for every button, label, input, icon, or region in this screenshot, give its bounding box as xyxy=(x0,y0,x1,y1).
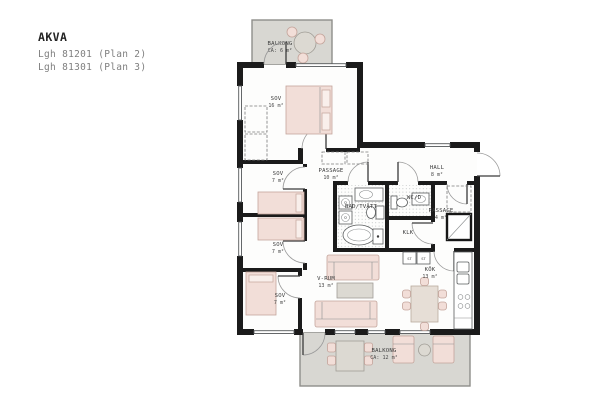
dining-chair xyxy=(421,323,429,331)
room-area-hall: 8 m² xyxy=(431,172,443,178)
room-area-passage-10: 10 m² xyxy=(323,175,338,181)
room-label-sov-c: SOV xyxy=(275,293,286,299)
tall-cabinet: ST xyxy=(403,252,416,264)
room-area-sov-b: 7 m² xyxy=(272,249,284,255)
room-label-vrum: V-RUM xyxy=(317,276,335,282)
balcony-chair xyxy=(328,343,336,352)
room-area-kok: 13 m² xyxy=(422,274,437,280)
room-label-passage-4: PASSAGE xyxy=(429,208,454,214)
window xyxy=(368,331,385,334)
room-label-sov-16: SOV xyxy=(271,96,282,102)
balcony-top: BALKONG CA: 6 m² xyxy=(252,20,332,65)
room-area-sov-16: 16 m² xyxy=(268,103,283,109)
window xyxy=(335,331,355,334)
balcony-bottom-area: CA: 12 m² xyxy=(370,355,398,361)
balcony-bottom: BALKONG CA: 12 m² xyxy=(300,332,470,386)
dining-table xyxy=(411,286,438,322)
room-label-wcd: WC/D xyxy=(407,195,422,201)
coffee-table xyxy=(337,283,373,298)
room-label-sov-b: SOV xyxy=(273,242,284,248)
window xyxy=(239,86,242,120)
room-label-kok: KÖK xyxy=(425,266,436,273)
room-label-hall: HALL xyxy=(430,165,445,171)
single-bed xyxy=(258,218,304,240)
room-area-sov-a: 7 m² xyxy=(272,178,284,184)
dining-chair xyxy=(403,290,411,298)
bathroom-sink xyxy=(355,188,383,201)
tall-cabinet-label: ST xyxy=(421,256,426,261)
kitchen-sink xyxy=(457,262,469,272)
room-label-bad-tvatt: BAD/TVÄTT xyxy=(345,203,378,210)
balcony-bottom-label: BALKONG xyxy=(372,348,397,354)
kitchen-sink xyxy=(457,274,469,284)
shower-drain xyxy=(373,229,383,244)
room-label-klk: KLK xyxy=(403,230,414,236)
balcony-chair xyxy=(315,34,325,44)
single-bed xyxy=(258,192,304,214)
room-label-sov-a: SOV xyxy=(273,171,284,177)
balcony-chair xyxy=(287,27,297,37)
balcony-round-table xyxy=(294,32,316,54)
window xyxy=(425,144,450,147)
floor-plan-page: AKVA Lgh 81201 (Plan 2) Lgh 81301 (Plan … xyxy=(0,0,600,400)
balcony-table xyxy=(336,341,364,371)
tall-cabinet: ST xyxy=(417,252,430,264)
dining-chair xyxy=(403,302,411,310)
dining-chair xyxy=(439,302,447,310)
window xyxy=(296,64,346,67)
balcony-top-label: BALKONG xyxy=(268,41,293,47)
lounge-chair xyxy=(433,336,454,363)
dryer xyxy=(339,211,352,224)
room-area-passage-4: 4 m² xyxy=(435,215,447,221)
balcony-chair xyxy=(328,356,336,365)
dining-chair xyxy=(439,290,447,298)
bathtub xyxy=(343,225,375,245)
window xyxy=(400,331,430,334)
double-bed xyxy=(286,86,332,134)
entrance-door xyxy=(477,153,500,176)
single-bed xyxy=(246,272,276,315)
window xyxy=(254,331,294,334)
room-label-passage-10: PASSAGE xyxy=(319,168,344,174)
room-area-vrum: 13 m² xyxy=(318,283,333,289)
kitchen-counter xyxy=(454,252,472,329)
balcony-chair xyxy=(298,53,308,63)
shaft xyxy=(447,214,471,240)
window xyxy=(239,222,242,256)
sofa xyxy=(315,301,377,327)
balcony-side-table xyxy=(419,344,431,356)
room-area-sov-c: 7 m² xyxy=(274,300,286,306)
floor-plan-drawing: BALKONG CA: 6 m² BALKONG CA: 12 m² xyxy=(0,0,600,400)
tall-cabinet-label: ST xyxy=(407,256,412,261)
balcony-top-area: CA: 6 m² xyxy=(268,48,293,54)
window xyxy=(239,168,242,202)
